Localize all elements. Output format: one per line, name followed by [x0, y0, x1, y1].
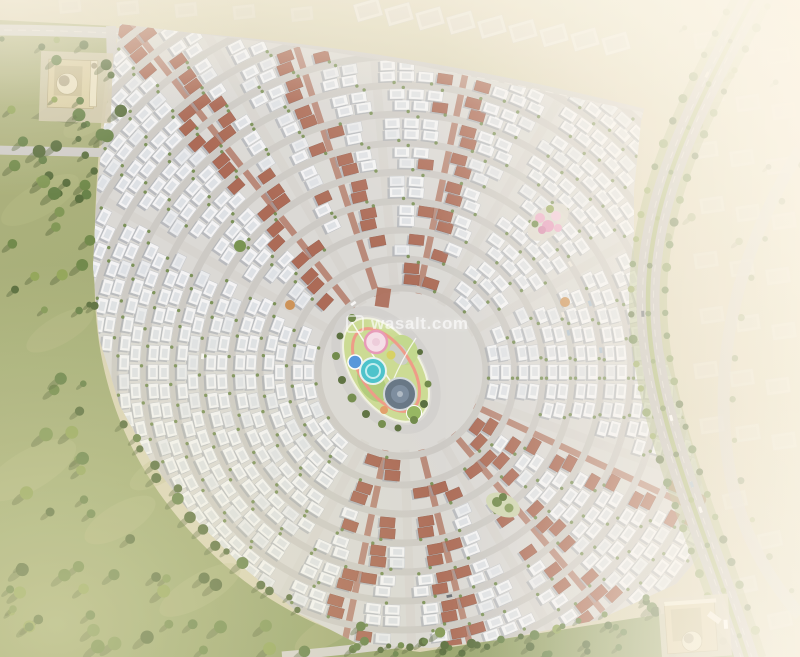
- sun-haze-overlays: [0, 0, 800, 657]
- aerial-masterplan-render: wasalt.com: [0, 0, 800, 657]
